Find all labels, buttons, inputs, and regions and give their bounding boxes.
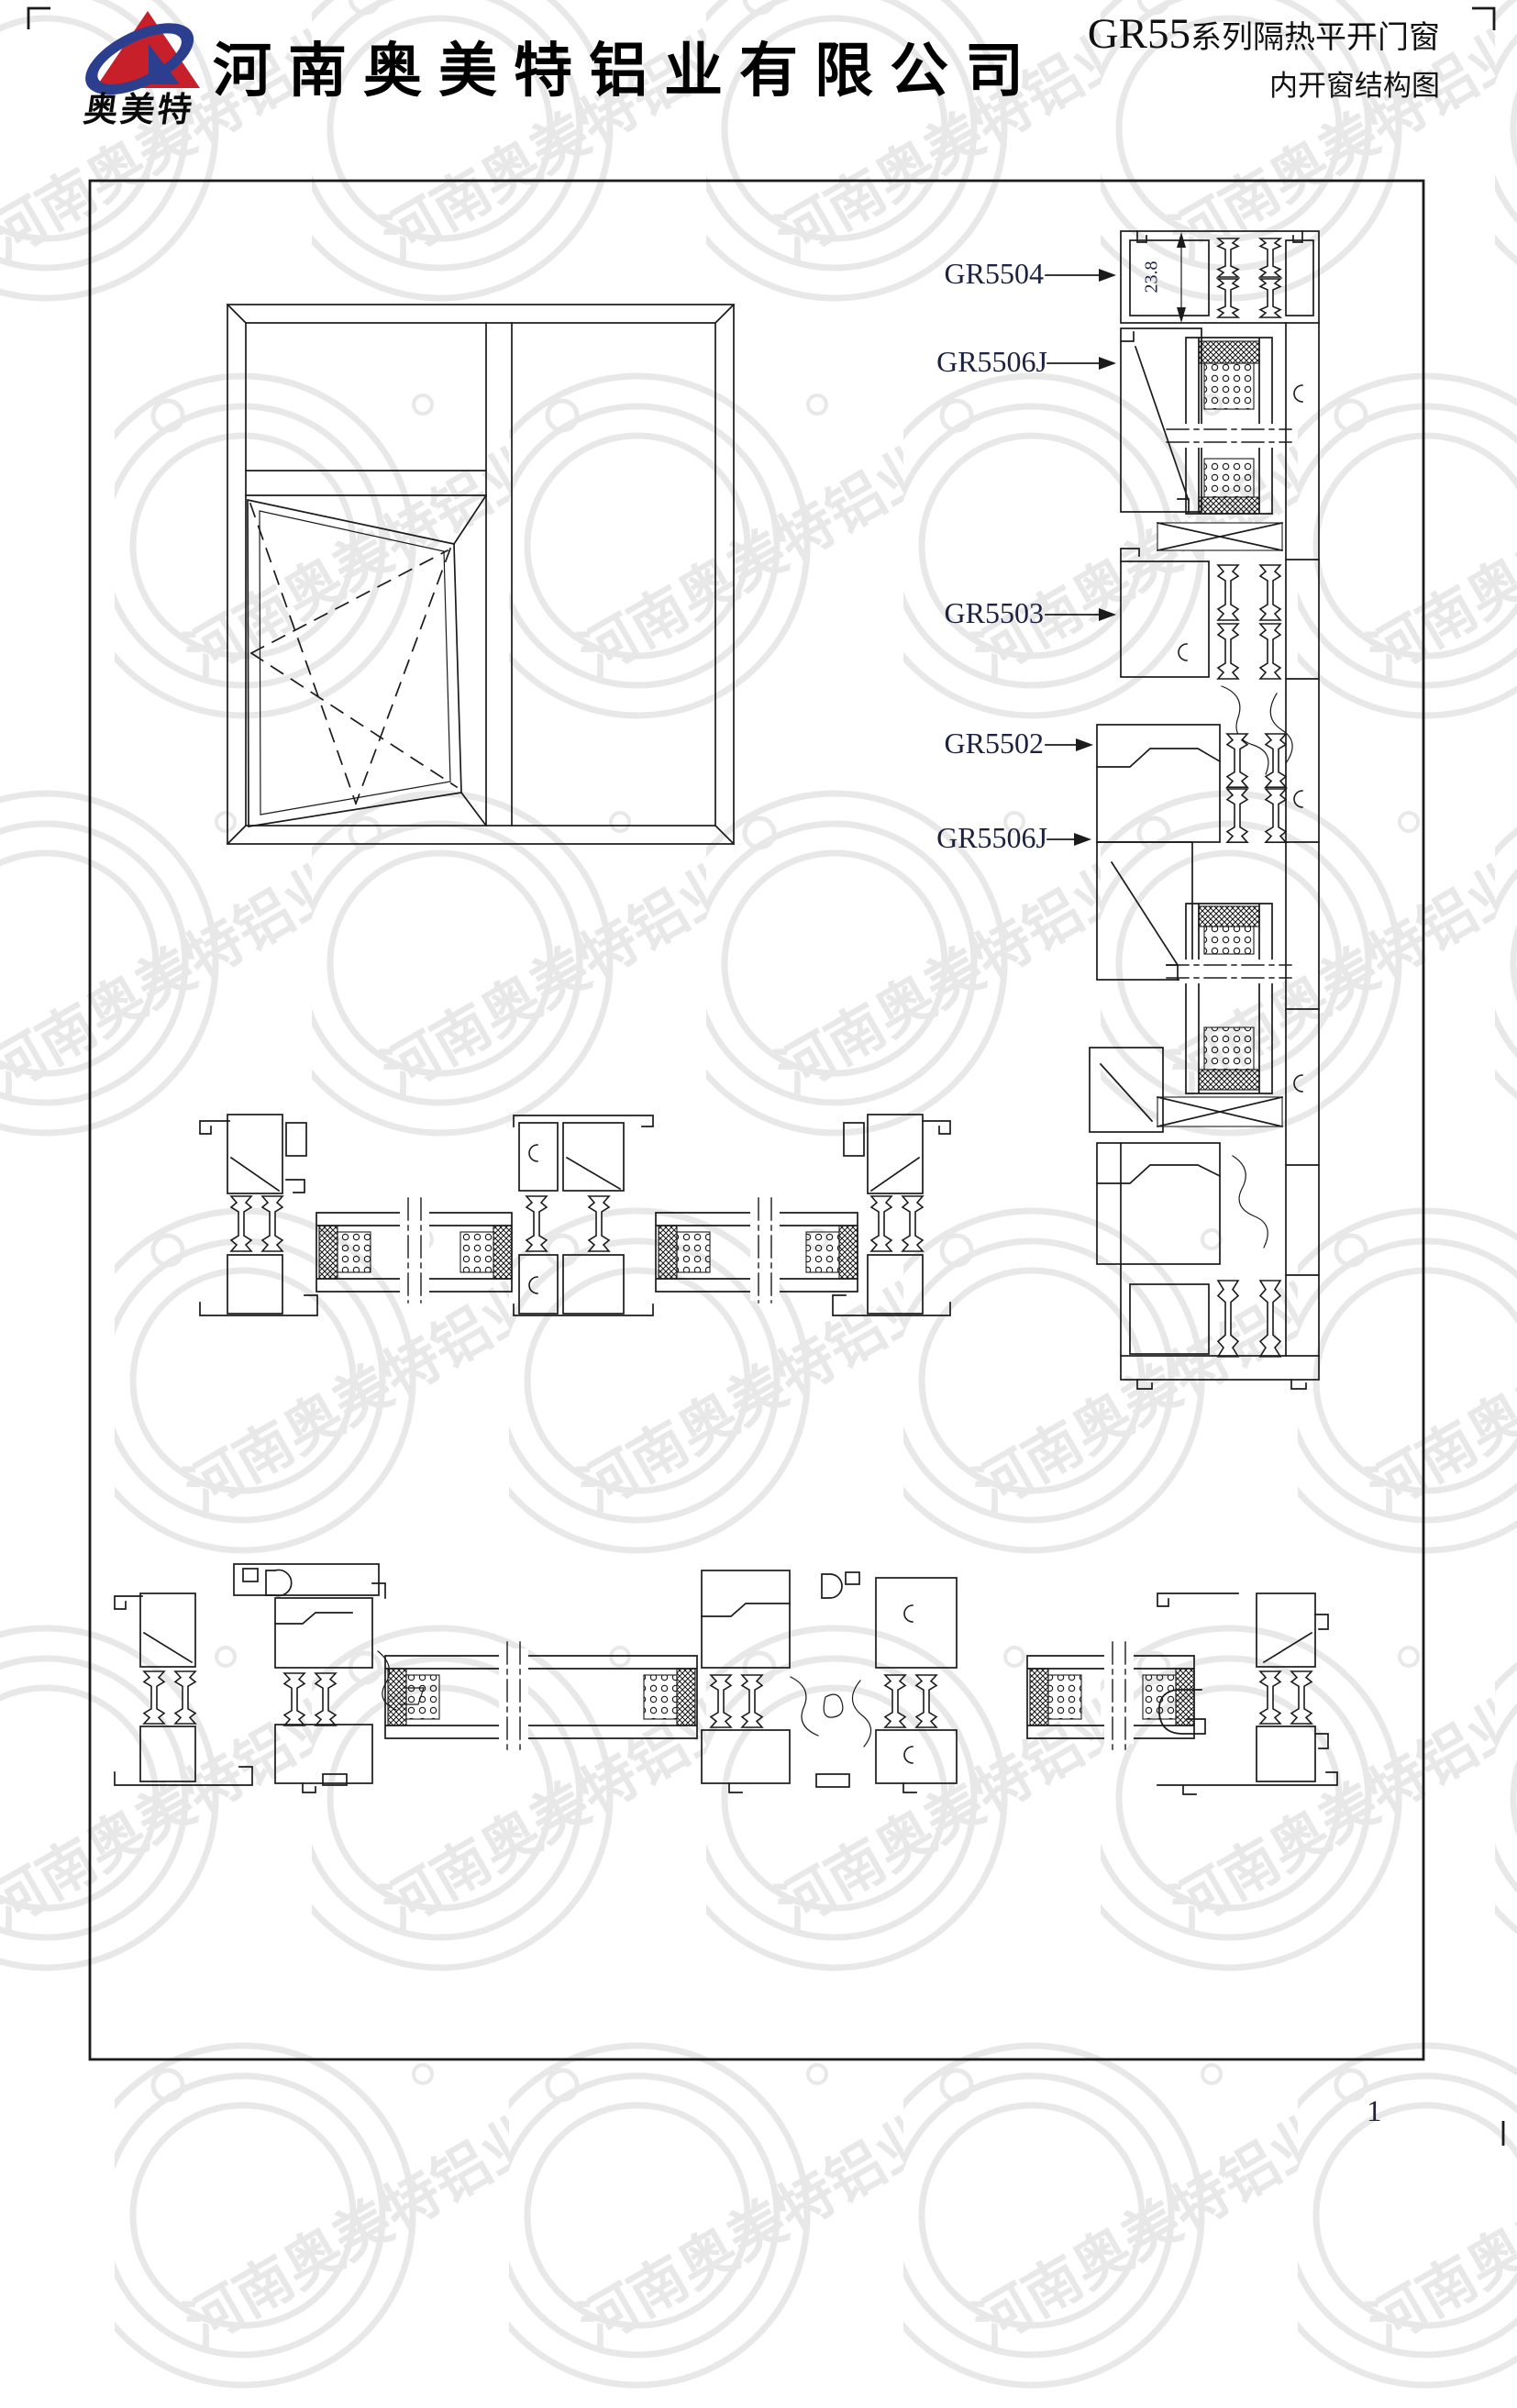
part-label-gr5502: GR5502 — [945, 727, 1044, 760]
cad-drawing — [0, 0, 1517, 2147]
drawing-subtitle: 内开窗结构图 — [1088, 62, 1440, 104]
company-name: 河南奥美特铝业有限公司 — [213, 24, 1040, 108]
dimension-value: 23.8 — [1142, 261, 1163, 294]
vertical-section — [1090, 231, 1319, 1389]
logo-text: 奥美特 — [82, 91, 197, 128]
horizontal-section-bottom — [115, 1564, 1337, 1794]
sheet-header: 奥美特 河南奥美特铝业有限公司 GR55系列隔热平开门窗 内开窗结构图 — [0, 0, 1517, 128]
company-logo: 奥美特 — [53, 4, 209, 128]
series-code: GR55 — [1088, 10, 1190, 58]
leader-lines — [1046, 269, 1116, 846]
title-block: GR55系列隔热平开门窗 内开窗结构图 — [1088, 9, 1440, 104]
series-suffix: 系列隔热平开门窗 — [1190, 21, 1440, 55]
series-title: GR55系列隔热平开门窗 — [1088, 9, 1440, 59]
window-elevation — [227, 305, 734, 844]
opening-symbol — [250, 504, 457, 804]
page-number: 1 — [1367, 2095, 1382, 2129]
part-label-gr5504: GR5504 — [945, 257, 1044, 291]
drawing-sheet: { "header": { "company_name": "河南奥美特铝业有限… — [0, 0, 1517, 2147]
part-label-gr5506j-top: GR5506J — [936, 345, 1047, 379]
part-label-gr5503: GR5503 — [945, 596, 1044, 630]
horizontal-section-middle — [200, 1115, 950, 1315]
dimension-23-8 — [1177, 232, 1186, 323]
part-label-gr5506j-bottom: GR5506J — [936, 821, 1047, 855]
